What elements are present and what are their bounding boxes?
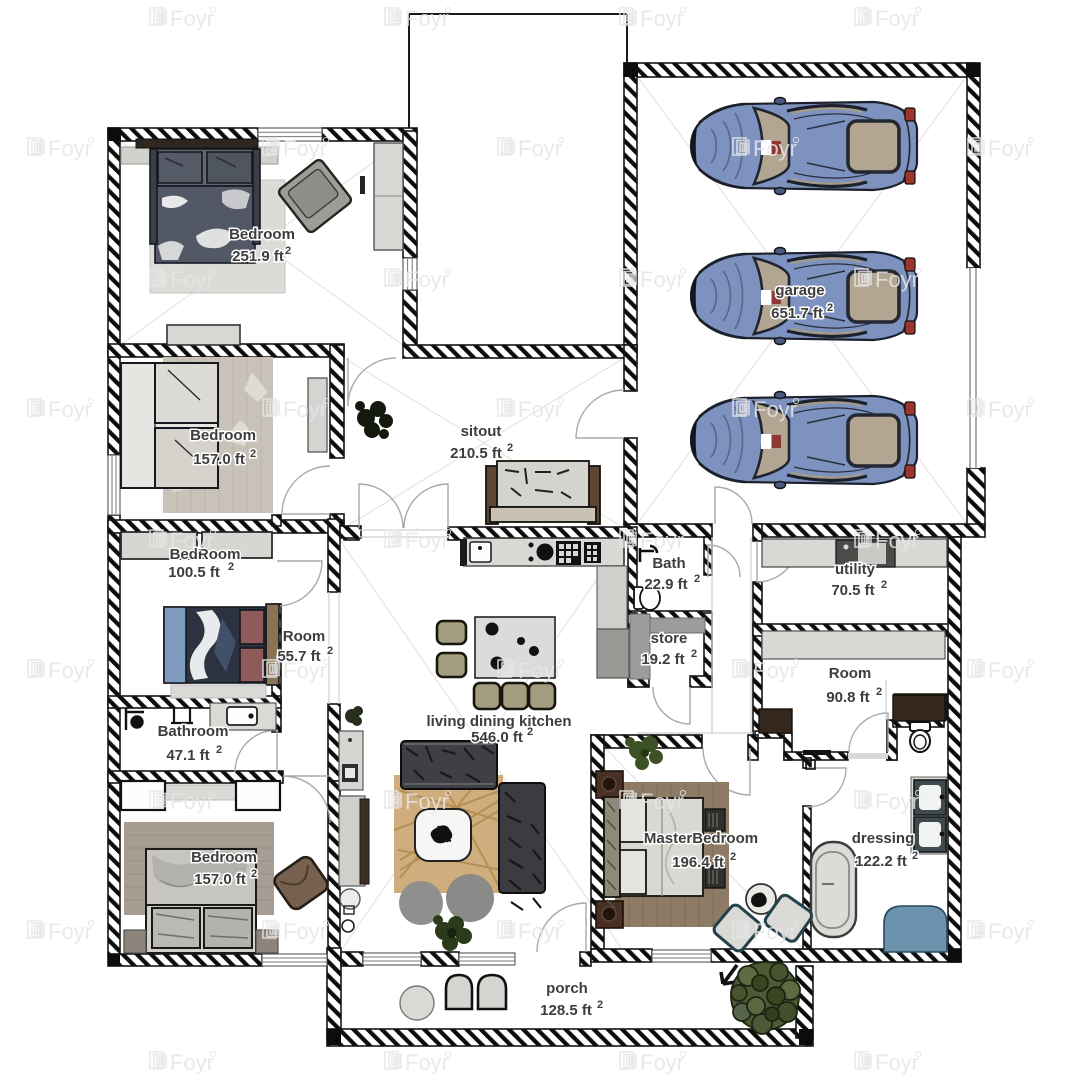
- svg-text:2: 2: [228, 561, 234, 573]
- svg-text:2: 2: [250, 448, 256, 460]
- svg-text:100.5 ft: 100.5 ft: [168, 564, 220, 581]
- svg-text:2: 2: [694, 573, 700, 585]
- svg-text:22.9 ft: 22.9 ft: [644, 576, 687, 593]
- svg-text:Bedroom: Bedroom: [190, 427, 256, 444]
- svg-text:Bedroom: Bedroom: [191, 849, 257, 866]
- svg-text:2: 2: [507, 442, 513, 454]
- svg-text:Bedroom: Bedroom: [229, 226, 295, 243]
- svg-text:546.0 ft: 546.0 ft: [471, 729, 523, 746]
- svg-text:2: 2: [527, 726, 533, 738]
- svg-text:Room: Room: [283, 628, 326, 645]
- svg-text:Bath: Bath: [652, 555, 685, 572]
- svg-text:Bathroom: Bathroom: [158, 723, 229, 740]
- svg-text:2: 2: [881, 579, 887, 591]
- svg-text:utility: utility: [835, 561, 876, 578]
- svg-text:2: 2: [912, 850, 918, 862]
- svg-text:garage: garage: [775, 282, 824, 299]
- svg-text:2: 2: [876, 686, 882, 698]
- svg-text:2: 2: [251, 868, 257, 880]
- svg-text:Room: Room: [829, 665, 872, 682]
- svg-text:210.5 ft: 210.5 ft: [450, 445, 502, 462]
- svg-text:47.1 ft: 47.1 ft: [166, 747, 209, 764]
- svg-text:2: 2: [597, 999, 603, 1011]
- svg-text:122.2 ft: 122.2 ft: [855, 853, 907, 870]
- svg-text:2: 2: [730, 851, 736, 863]
- svg-text:2: 2: [216, 744, 222, 756]
- svg-text:porch: porch: [546, 980, 588, 997]
- svg-text:651.7 ft: 651.7 ft: [771, 305, 823, 322]
- svg-text:2: 2: [691, 648, 697, 660]
- svg-text:MasterBedroom: MasterBedroom: [644, 830, 758, 847]
- svg-text:196.4 ft: 196.4 ft: [672, 854, 724, 871]
- svg-text:2: 2: [327, 645, 333, 657]
- svg-text:sitout: sitout: [461, 423, 502, 440]
- svg-text:living dining kitchen: living dining kitchen: [426, 713, 571, 730]
- svg-text:70.5 ft: 70.5 ft: [831, 582, 874, 599]
- svg-text:dressing: dressing: [852, 830, 915, 847]
- svg-text:90.8 ft: 90.8 ft: [826, 689, 869, 706]
- svg-text:128.5 ft: 128.5 ft: [540, 1002, 592, 1019]
- svg-text:store: store: [651, 630, 688, 647]
- svg-text:157.0 ft: 157.0 ft: [194, 871, 246, 888]
- svg-text:19.2 ft: 19.2 ft: [641, 651, 684, 668]
- svg-text:251.9 ft: 251.9 ft: [232, 248, 284, 265]
- svg-text:157.0 ft: 157.0 ft: [193, 451, 245, 468]
- svg-text:2: 2: [827, 302, 833, 314]
- svg-text:2: 2: [285, 245, 291, 257]
